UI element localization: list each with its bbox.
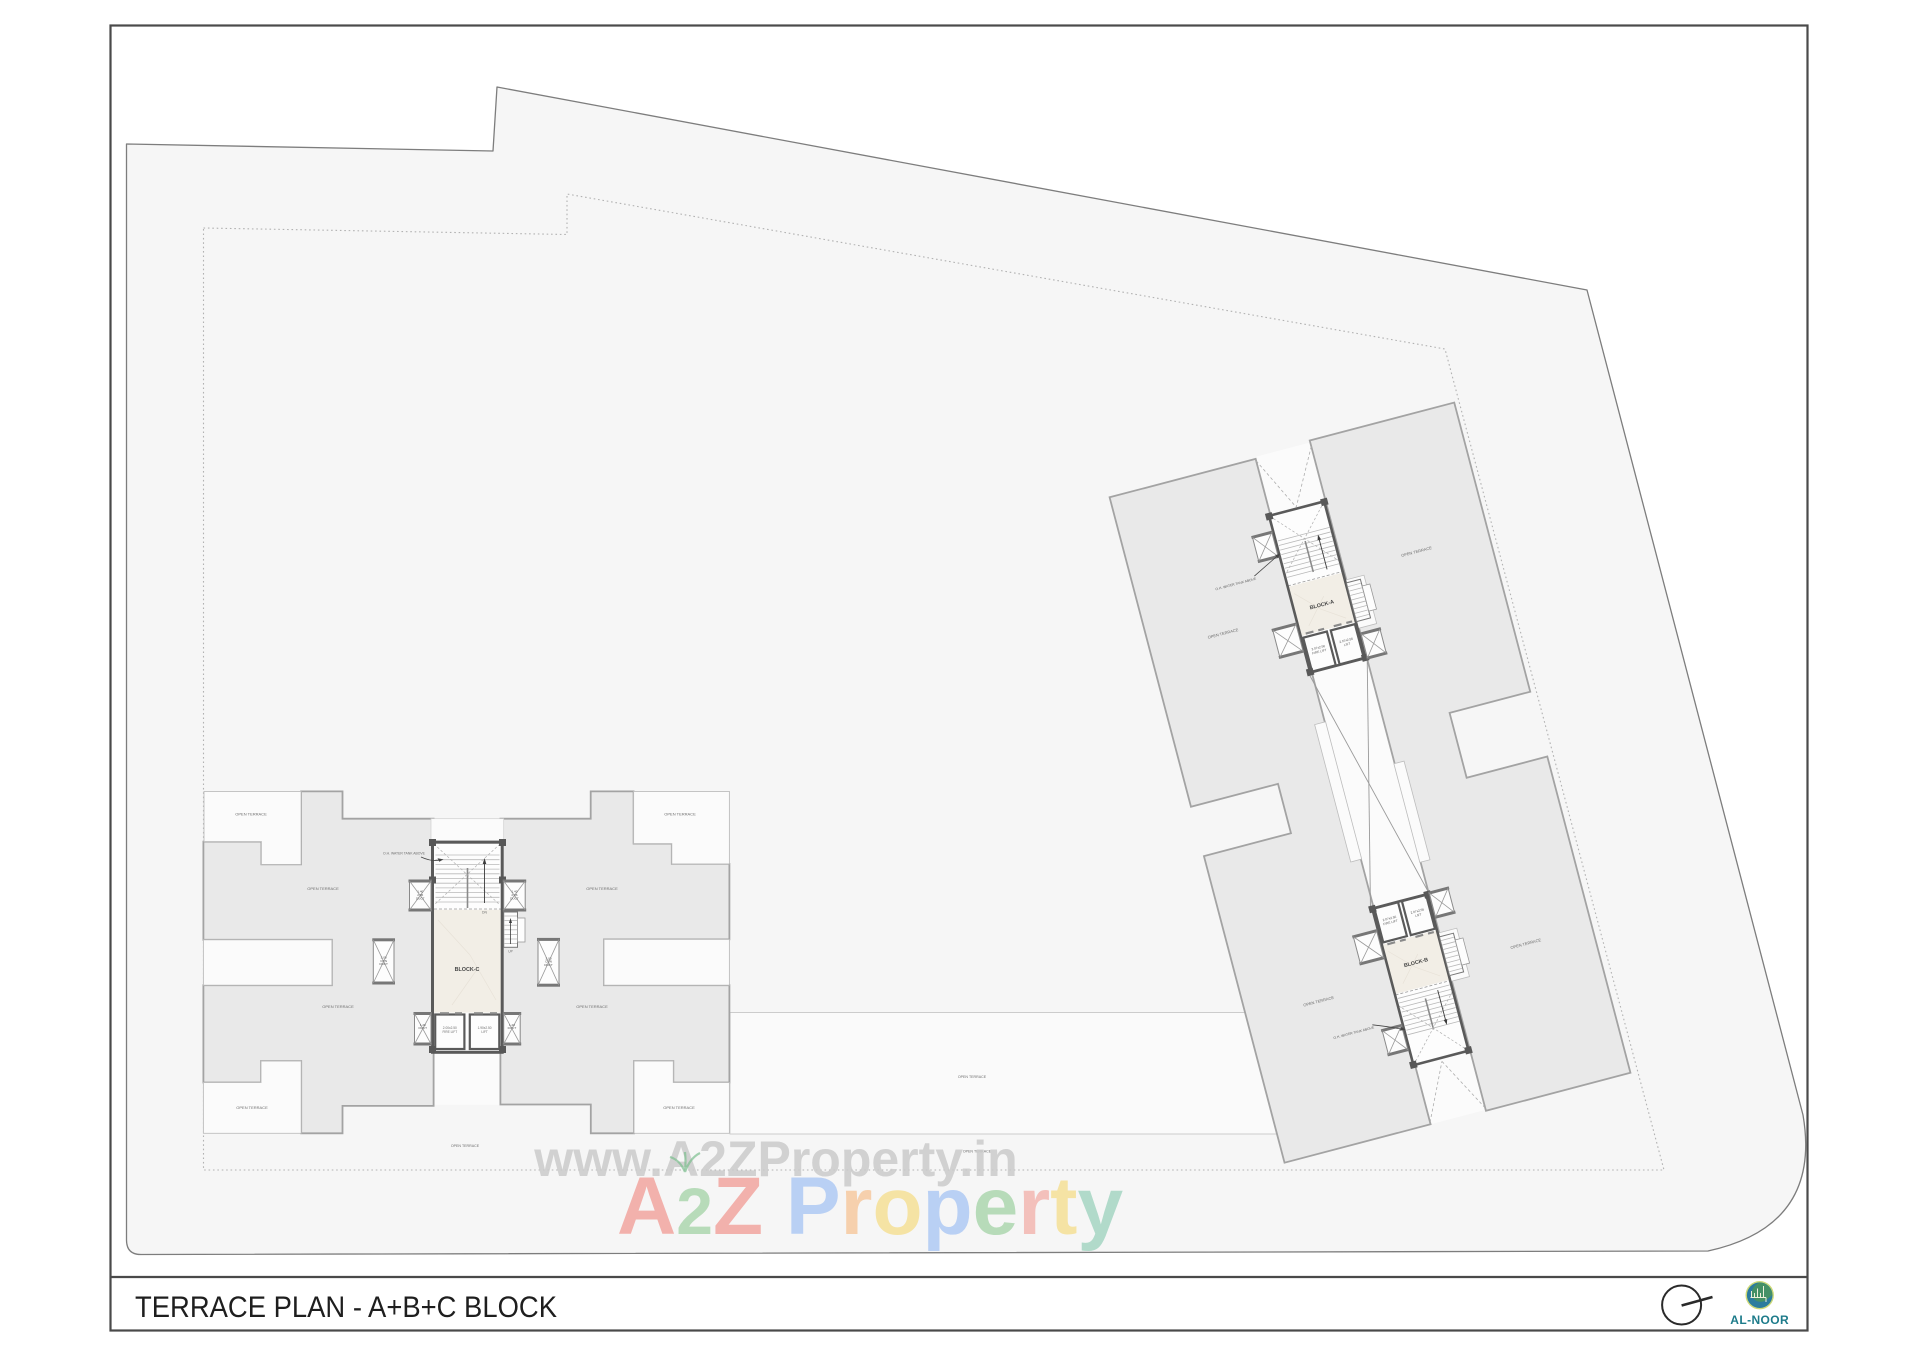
svg-text:OPEN TERRACE: OPEN TERRACE xyxy=(451,1144,480,1148)
svg-text:AL-NOOR: AL-NOOR xyxy=(1730,1313,1789,1327)
svg-text:OPEN TERRACE: OPEN TERRACE xyxy=(307,886,339,891)
svg-text:DUCT: DUCT xyxy=(418,1026,427,1030)
svg-text:DUCT: DUCT xyxy=(416,896,425,900)
svg-text:O.H. WATER TANK ABOVE: O.H. WATER TANK ABOVE xyxy=(383,852,426,856)
svg-text:OPEN TERRACE: OPEN TERRACE xyxy=(663,1105,695,1110)
svg-text:BLOCK-C: BLOCK-C xyxy=(455,967,480,973)
svg-text:FIRE LIFT: FIRE LIFT xyxy=(442,1030,457,1034)
svg-text:A2Z Property: A2Z Property xyxy=(617,1161,1123,1252)
svg-text:OPEN TERRACE: OPEN TERRACE xyxy=(958,1075,987,1079)
svg-text:DUCT: DUCT xyxy=(508,1026,517,1030)
svg-text:DUCT: DUCT xyxy=(379,962,388,966)
svg-text:OPEN TERRACE: OPEN TERRACE xyxy=(236,1105,268,1110)
svg-text:LIFT: LIFT xyxy=(481,1030,488,1034)
svg-text:OPEN TERRACE: OPEN TERRACE xyxy=(586,886,618,891)
svg-text:DUCT: DUCT xyxy=(510,896,519,900)
svg-text:OPEN TERRACE: OPEN TERRACE xyxy=(576,1004,608,1009)
svg-text:DN: DN xyxy=(482,911,487,915)
svg-text:DUCT: DUCT xyxy=(544,963,553,967)
svg-text:UP: UP xyxy=(508,950,512,954)
svg-text:OPEN TERRACE: OPEN TERRACE xyxy=(235,812,267,817)
svg-text:OPEN TERRACE: OPEN TERRACE xyxy=(322,1004,354,1009)
svg-text:OPEN TERRACE: OPEN TERRACE xyxy=(664,812,696,817)
svg-text:TERRACE PLAN - A+B+C BLOCK: TERRACE PLAN - A+B+C BLOCK xyxy=(135,1291,557,1324)
